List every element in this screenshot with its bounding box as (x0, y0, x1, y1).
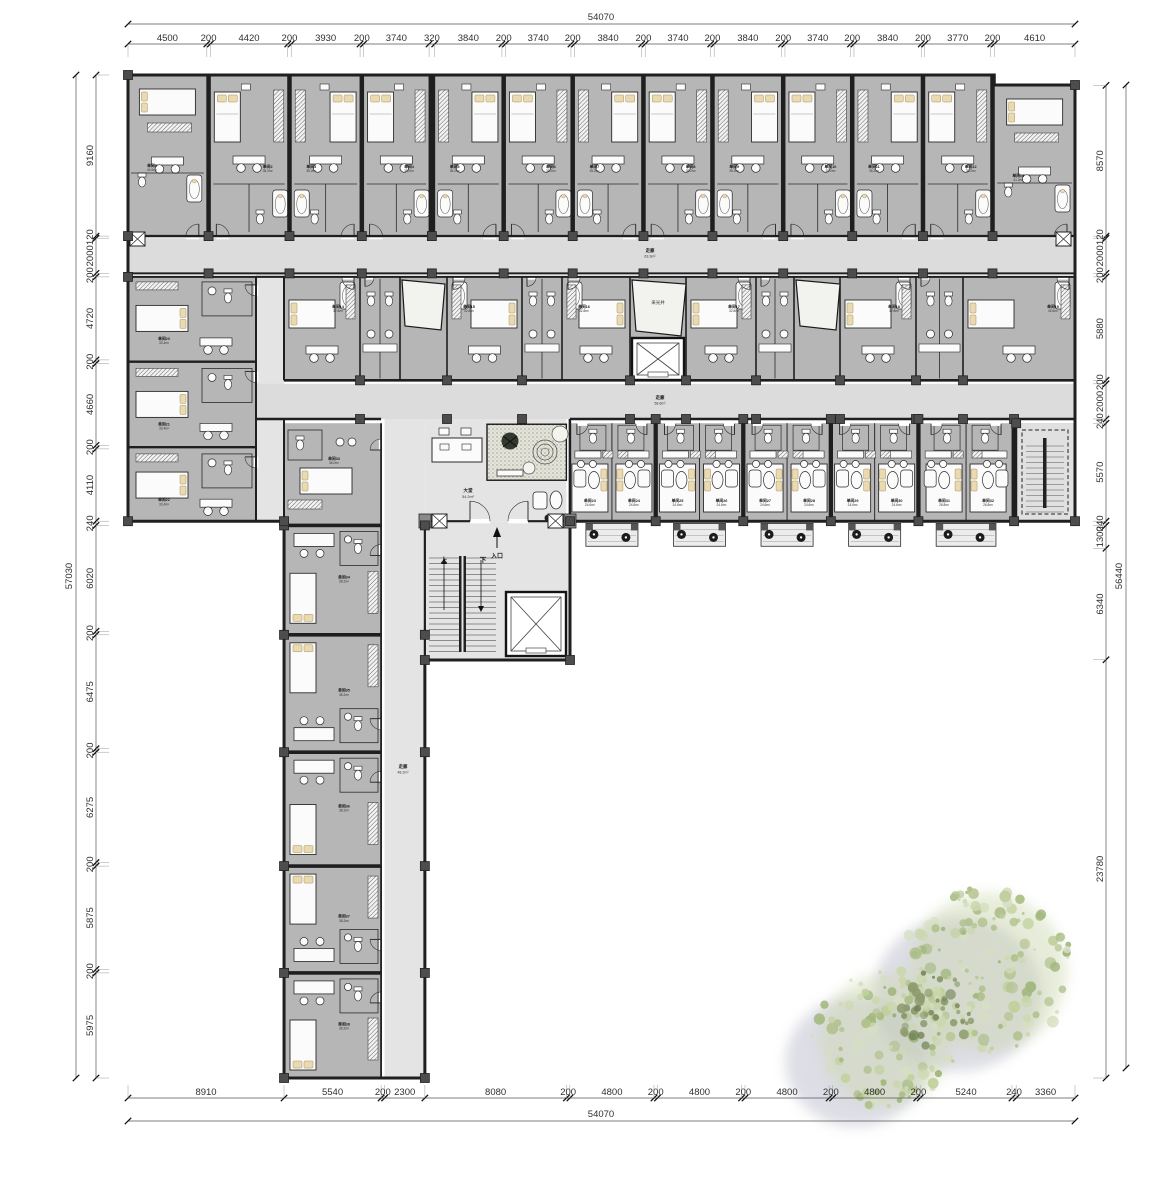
svg-text:200: 200 (910, 1087, 926, 1098)
pillow (304, 645, 313, 652)
pillow (228, 95, 237, 102)
wardrobe (346, 285, 355, 319)
column (914, 517, 923, 526)
pillow (970, 303, 976, 313)
pillow (601, 469, 607, 479)
pillow (475, 95, 484, 102)
wardrobe (705, 451, 715, 458)
pillow (141, 103, 147, 112)
balcony (586, 523, 638, 546)
column (739, 415, 748, 424)
column (204, 269, 213, 278)
pillow (754, 95, 763, 102)
desk (294, 981, 334, 994)
pillow (864, 481, 870, 491)
bed (1007, 99, 1063, 125)
pillow (617, 481, 623, 491)
pillow (894, 95, 903, 102)
light-well: 采光井 (632, 280, 686, 336)
balcony (849, 523, 901, 546)
svg-text:35.2m²: 35.2m² (404, 169, 414, 173)
svg-text:4420: 4420 (238, 33, 259, 44)
svg-text:35.2m²: 35.2m² (589, 169, 599, 173)
pillow (617, 303, 623, 313)
pillow (304, 614, 313, 621)
balcony (673, 523, 725, 546)
pillow (180, 319, 186, 328)
svg-text:200: 200 (85, 856, 96, 872)
shaft-box (432, 514, 447, 528)
pillow (180, 308, 186, 317)
svg-text:3360: 3360 (1035, 1087, 1056, 1098)
pillow (344, 95, 353, 102)
column (280, 862, 289, 871)
svg-text:200: 200 (985, 33, 1001, 44)
column (988, 232, 997, 241)
svg-text:200: 200 (844, 33, 860, 44)
svg-text:24.6m²: 24.6m² (760, 503, 770, 507)
svg-text:3740: 3740 (667, 33, 688, 44)
svg-text:120: 120 (1095, 229, 1106, 245)
pillow (217, 95, 226, 102)
column (779, 232, 788, 241)
wardrobe (866, 451, 876, 458)
svg-text:200: 200 (375, 1087, 391, 1098)
pillow (293, 846, 302, 853)
pillow (803, 95, 812, 102)
column (357, 232, 366, 241)
svg-text:3930: 3930 (315, 33, 336, 44)
wardrobe (368, 571, 378, 613)
column (626, 415, 635, 424)
column (566, 656, 575, 665)
svg-text:200: 200 (636, 33, 652, 44)
column (124, 71, 133, 80)
svg-text:2000: 2000 (1095, 245, 1106, 266)
column (1012, 419, 1021, 428)
wardrobe (953, 451, 963, 458)
svg-text:8080: 8080 (485, 1087, 506, 1098)
svg-text:200: 200 (496, 33, 512, 44)
wardrobe (858, 90, 868, 142)
corridor-1 (128, 238, 1075, 273)
pillow (943, 95, 952, 102)
svg-text:38.2m²: 38.2m² (339, 580, 349, 584)
svg-text:33.4m²: 33.4m² (159, 502, 169, 506)
wardrobe (578, 90, 588, 142)
svg-text:38.2m²: 38.2m² (339, 919, 349, 923)
column (443, 376, 452, 385)
wardrobe (368, 1018, 378, 1060)
pillow (792, 95, 801, 102)
svg-text:下: 下 (480, 556, 487, 564)
svg-text:200: 200 (775, 33, 791, 44)
svg-text:38.2m²: 38.2m² (339, 693, 349, 697)
svg-text:入口: 入口 (490, 553, 503, 560)
wardrobe (567, 285, 576, 319)
svg-text:38.2m²: 38.2m² (339, 809, 349, 813)
column (912, 376, 921, 385)
column (568, 269, 577, 278)
svg-text:200: 200 (85, 267, 96, 283)
svg-text:6340: 6340 (1095, 593, 1106, 614)
svg-text:2000: 2000 (1095, 391, 1106, 412)
svg-text:3840: 3840 (877, 33, 898, 44)
svg-text:3840: 3840 (737, 33, 758, 44)
wardrobe (368, 803, 378, 845)
wardrobe (136, 454, 178, 462)
desk (294, 948, 334, 961)
pillow (1009, 113, 1015, 122)
column (626, 376, 635, 385)
column (280, 968, 289, 977)
svg-text:24.6m²: 24.6m² (892, 503, 902, 507)
floorplan-canvas: 单间140.6m²单间235.2m²单间335.2m²单间435.2m²单间53… (0, 0, 1150, 1192)
pillow (704, 481, 710, 491)
pillow (847, 315, 853, 325)
pillow (302, 482, 308, 491)
pillow (652, 95, 661, 102)
column (420, 862, 429, 871)
svg-text:200: 200 (735, 1087, 751, 1098)
column (420, 521, 429, 530)
svg-text:200: 200 (915, 33, 931, 44)
svg-text:3740: 3740 (807, 33, 828, 44)
column (124, 232, 133, 241)
column (443, 415, 452, 424)
svg-text:35.2m²: 35.2m² (826, 169, 836, 173)
pillow (601, 481, 607, 491)
svg-text:24.6m²: 24.6m² (585, 503, 595, 507)
pillow (304, 1061, 313, 1068)
pillow (864, 469, 870, 479)
svg-text:35.2m²: 35.2m² (546, 169, 556, 173)
column (518, 415, 527, 424)
column (285, 269, 294, 278)
column (918, 269, 927, 278)
desk (294, 728, 334, 741)
column (499, 269, 508, 278)
column (499, 232, 508, 241)
svg-text:4660: 4660 (85, 394, 96, 415)
column (682, 376, 691, 385)
svg-text:54070: 54070 (588, 1109, 614, 1120)
column (682, 415, 691, 424)
column (427, 232, 436, 241)
svg-text:38.2m²: 38.2m² (339, 1027, 349, 1031)
svg-text:200: 200 (1095, 374, 1106, 390)
pillow (180, 405, 186, 414)
pillow (905, 95, 914, 102)
svg-text:6020: 6020 (85, 568, 96, 589)
pillow (704, 469, 710, 479)
column (280, 748, 289, 757)
svg-text:上: 上 (441, 555, 448, 564)
wardrobe (618, 451, 628, 458)
column (639, 269, 648, 278)
svg-text:48.2m²: 48.2m² (397, 771, 409, 775)
svg-text:54.2m²: 54.2m² (462, 495, 475, 499)
svg-text:57030: 57030 (64, 563, 75, 589)
wardrobe (972, 451, 982, 458)
column (420, 656, 429, 665)
pillow (617, 469, 623, 479)
svg-text:4720: 4720 (85, 308, 96, 329)
column (848, 269, 857, 278)
column (836, 376, 845, 385)
column (124, 517, 133, 526)
column (1010, 517, 1019, 526)
desk (294, 533, 334, 546)
svg-text:1300: 1300 (1095, 526, 1106, 547)
column (959, 376, 968, 385)
column (356, 376, 365, 385)
svg-text:4800: 4800 (689, 1087, 710, 1098)
pillow (291, 315, 297, 325)
shaft-box (1056, 232, 1071, 246)
column (826, 517, 835, 526)
svg-text:9160: 9160 (85, 145, 96, 166)
svg-text:32.8m²: 32.8m² (729, 309, 739, 313)
pillow (486, 95, 495, 102)
wardrobe (136, 368, 178, 376)
wardrobe (136, 282, 178, 290)
svg-text:56440: 56440 (1114, 563, 1125, 589)
svg-text:200: 200 (85, 354, 96, 370)
wardrobe (881, 451, 891, 458)
elevator (632, 338, 684, 380)
pillow (180, 394, 186, 403)
column (427, 269, 436, 278)
column (651, 415, 660, 424)
column (280, 630, 289, 639)
svg-text:3770: 3770 (947, 33, 968, 44)
pillow (293, 1061, 302, 1068)
svg-text:200: 200 (1095, 267, 1106, 283)
svg-text:240: 240 (1095, 413, 1106, 429)
pillow (693, 303, 699, 313)
pillow (971, 481, 977, 491)
column (779, 269, 788, 278)
wardrobe (452, 285, 461, 319)
garden (487, 424, 568, 480)
column (566, 517, 575, 526)
column (848, 232, 857, 241)
pillow (880, 481, 886, 491)
wardrobe (274, 90, 284, 142)
wardrobe (147, 123, 191, 132)
svg-text:3740: 3740 (386, 33, 407, 44)
pillow (971, 469, 977, 479)
svg-text:200: 200 (85, 743, 96, 759)
svg-text:26.8m²: 26.8m² (983, 503, 993, 507)
wardrobe (836, 90, 846, 142)
svg-text:走廊: 走廊 (645, 247, 655, 254)
pillow (371, 95, 380, 102)
svg-text:3840: 3840 (458, 33, 479, 44)
column (836, 415, 845, 424)
wardrobe (288, 500, 322, 509)
pillow (382, 95, 391, 102)
svg-text:200: 200 (560, 1087, 576, 1098)
balcony (761, 523, 813, 546)
column (988, 269, 997, 278)
svg-text:24.6m²: 24.6m² (804, 503, 814, 507)
pillow (792, 481, 798, 491)
pillow (955, 481, 961, 491)
pillow (880, 469, 886, 479)
svg-text:24.6m²: 24.6m² (629, 503, 639, 507)
wardrobe (718, 90, 728, 142)
svg-text:200: 200 (282, 33, 298, 44)
wardrobe (793, 451, 803, 458)
pillow (847, 303, 853, 313)
svg-text:走廊: 走廊 (398, 763, 408, 770)
svg-text:5540: 5540 (322, 1087, 343, 1098)
svg-text:45.6m²: 45.6m² (1048, 309, 1058, 313)
dimension-left: 9160120200020047202004660200411024060202… (64, 72, 109, 1081)
pillow (509, 315, 515, 325)
svg-text:200: 200 (85, 963, 96, 979)
wardrobe (778, 451, 788, 458)
column (651, 517, 660, 526)
column (959, 415, 968, 424)
column (285, 232, 294, 241)
svg-text:33.4m²: 33.4m² (159, 341, 169, 345)
svg-text:41.2m²: 41.2m² (1013, 178, 1023, 182)
svg-text:35.2m²: 35.2m² (306, 169, 316, 173)
svg-text:24.6m²: 24.6m² (717, 503, 727, 507)
column (708, 232, 717, 241)
svg-text:200: 200 (85, 625, 96, 641)
column (914, 415, 923, 424)
svg-text:35.2m²: 35.2m² (450, 169, 460, 173)
svg-text:4800: 4800 (776, 1087, 797, 1098)
svg-text:33.4m²: 33.4m² (159, 427, 169, 431)
svg-text:32.8m²: 32.8m² (889, 309, 899, 313)
pillow (776, 469, 782, 479)
pillow (615, 95, 624, 102)
svg-text:54070: 54070 (588, 12, 614, 23)
column (356, 415, 365, 424)
svg-text:6475: 6475 (85, 681, 96, 702)
svg-text:240: 240 (85, 515, 96, 531)
svg-text:5975: 5975 (85, 1015, 96, 1036)
svg-text:63.3m²: 63.3m² (644, 255, 656, 259)
column (280, 1074, 289, 1083)
wardrobe (1061, 285, 1070, 319)
shaft-box (548, 514, 563, 528)
svg-text:36.0m²: 36.0m² (329, 461, 339, 465)
reception-desk (432, 438, 482, 462)
svg-text:40.6m²: 40.6m² (147, 168, 157, 172)
pillow (765, 95, 774, 102)
pillow (302, 471, 308, 480)
svg-text:32.8m²: 32.8m² (333, 309, 343, 313)
svg-text:24.6m²: 24.6m² (673, 503, 683, 507)
svg-text:4110: 4110 (85, 475, 96, 495)
column (568, 232, 577, 241)
dimension-top: 4500200442020039302003740320384020037402… (125, 12, 1078, 57)
pillow (523, 95, 532, 102)
column (918, 232, 927, 241)
svg-text:2000: 2000 (85, 245, 96, 266)
column (420, 630, 429, 639)
wardrobe (1015, 133, 1059, 142)
column (826, 415, 835, 424)
pillow (776, 481, 782, 491)
svg-text:35.2m²: 35.2m² (729, 169, 739, 173)
wardrobe (697, 90, 707, 142)
column (1071, 517, 1080, 526)
pillow (688, 469, 694, 479)
elevator (506, 592, 566, 656)
column (1071, 81, 1080, 90)
svg-text:6275: 6275 (85, 797, 96, 818)
wardrobe (368, 876, 378, 918)
column (752, 415, 761, 424)
wardrobe (295, 90, 305, 142)
svg-text:8570: 8570 (1095, 150, 1106, 171)
column (280, 517, 289, 526)
svg-text:4800: 4800 (601, 1087, 622, 1098)
svg-text:35.2m²: 35.2m² (966, 169, 976, 173)
pillow (955, 469, 961, 479)
bed (139, 89, 195, 115)
pillow (932, 95, 941, 102)
svg-text:58.6m²: 58.6m² (654, 402, 666, 406)
wardrobe (902, 285, 911, 319)
column (124, 272, 133, 281)
pillow (293, 645, 302, 652)
svg-text:200: 200 (648, 1087, 664, 1098)
svg-text:采光井: 采光井 (651, 299, 665, 306)
svg-text:32.8m²: 32.8m² (464, 309, 474, 313)
wardrobe (690, 451, 700, 458)
dimension-bottom: 8910554020023008080200480020048002004800… (125, 1085, 1078, 1124)
svg-text:32.8m²: 32.8m² (579, 309, 589, 313)
column (420, 748, 429, 757)
wardrobe (439, 90, 449, 142)
wardrobe (603, 451, 613, 458)
svg-text:8910: 8910 (195, 1087, 216, 1098)
wardrobe (742, 285, 751, 319)
svg-text:大堂: 大堂 (463, 487, 473, 494)
svg-text:5240: 5240 (955, 1087, 976, 1098)
wardrobe (977, 90, 987, 142)
svg-text:5875: 5875 (85, 907, 96, 928)
svg-text:35.2m²: 35.2m² (686, 169, 696, 173)
svg-text:走廊: 走廊 (655, 394, 665, 401)
column (708, 269, 717, 278)
svg-text:200: 200 (705, 33, 721, 44)
pillow (693, 315, 699, 325)
pillow (663, 95, 672, 102)
svg-text:5880: 5880 (1095, 318, 1106, 339)
column (420, 1074, 429, 1083)
pillow (512, 95, 521, 102)
column (420, 968, 429, 977)
column (518, 376, 527, 385)
svg-text:23780: 23780 (1095, 856, 1106, 882)
column (639, 232, 648, 241)
light-well (402, 280, 445, 330)
svg-text:4500: 4500 (157, 33, 178, 44)
svg-text:200: 200 (201, 33, 217, 44)
pillow (293, 614, 302, 621)
svg-text:320: 320 (424, 33, 440, 44)
pillow (792, 469, 798, 479)
